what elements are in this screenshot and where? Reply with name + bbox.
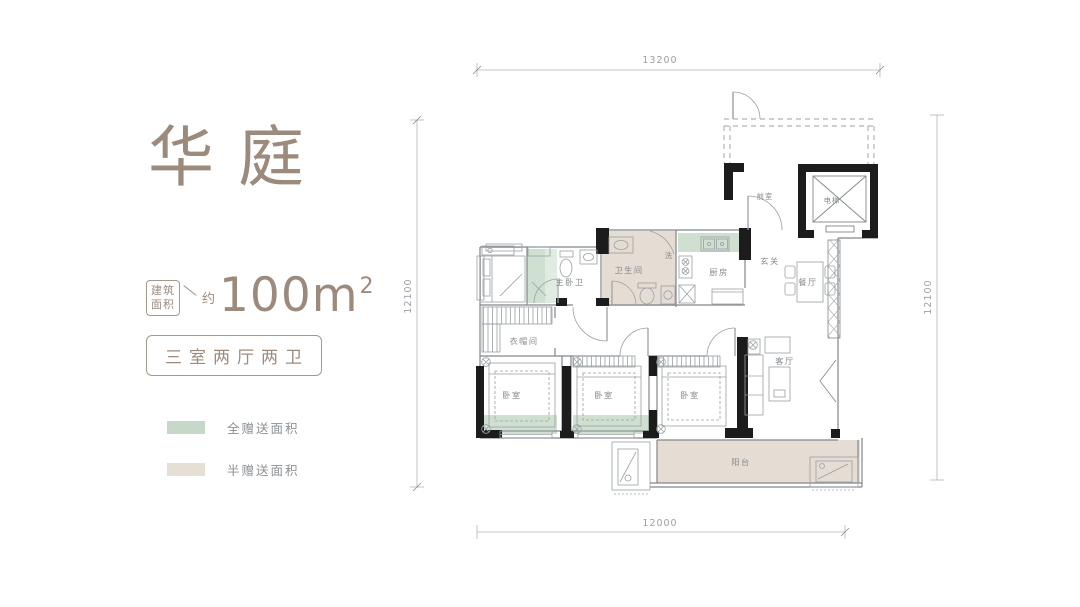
label-dining: 餐厅 — [798, 277, 817, 287]
label-closet: 衣帽间 — [509, 336, 538, 346]
dim-bottom: 12000 — [642, 518, 677, 529]
shower-gift-fill — [527, 249, 545, 303]
floorplan-page: 华庭 建筑 面积 约 100m2 三室两厅两卫 全赠送面积 半赠送面积 — [0, 0, 1080, 607]
label-bedroom3: 卧室 — [680, 390, 699, 400]
label-bedroom2: 卧室 — [594, 390, 613, 400]
label-balcony: 阳台 — [731, 457, 750, 467]
floor-plan: 前室 电梯 玄关 餐厅 厨房 卫生间 主卧卫 洗 衣帽间 卧室 卧室 卧室 客厅… — [0, 0, 1080, 607]
label-wash: 洗 — [665, 251, 673, 260]
label-vestibule: 前室 — [757, 192, 773, 201]
ac-unit-left — [612, 442, 650, 494]
label-living: 客厅 — [775, 356, 794, 366]
dim-top: 13200 — [642, 55, 677, 66]
master-bed — [480, 256, 525, 302]
vestibule-dashed-walls — [724, 92, 874, 164]
label-bedroom1: 卧室 — [502, 390, 521, 400]
label-foyer: 玄关 — [760, 256, 779, 266]
label-kitchen: 厨房 — [709, 267, 728, 277]
label-elevator: 电梯 — [824, 196, 840, 205]
balcony-halfgift-fill — [657, 440, 860, 483]
label-master-bath: 主卧卫 — [555, 277, 584, 287]
dim-right: 12100 — [923, 279, 934, 314]
dim-left: 12100 — [403, 278, 414, 313]
label-bathroom: 卫生间 — [614, 265, 643, 275]
shower-gift-fill-light — [545, 249, 557, 303]
